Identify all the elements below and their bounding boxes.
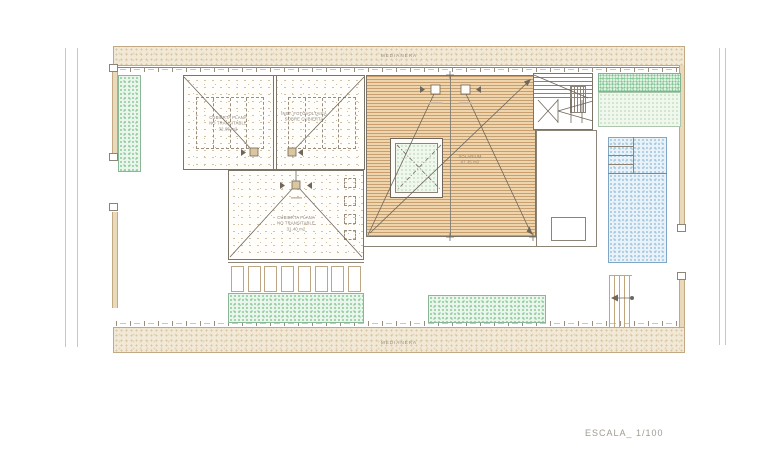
green-band-dark xyxy=(598,73,681,92)
pool-steps-divider xyxy=(633,137,634,173)
right-wall-lower xyxy=(679,280,685,327)
pergola-edge-line xyxy=(228,262,364,263)
pool-step-3 xyxy=(608,164,633,165)
floor-plan-canvas: MEDIANERA MEDIANERA CUBIERTA PLANA NO TR… xyxy=(0,0,770,460)
planter-left xyxy=(118,75,141,172)
left-wall-pier-3 xyxy=(109,203,118,211)
right-wall-pier-1 xyxy=(677,224,686,232)
site-boundary-line-right-outer xyxy=(725,48,726,345)
pool-shelf-line xyxy=(608,173,667,174)
scale-label: ESCALA_ 1/100 xyxy=(585,428,664,438)
left-wall-pier-1 xyxy=(109,64,118,72)
pool-step-1 xyxy=(608,146,633,147)
roof-vent-2 xyxy=(344,196,356,206)
enclosure-inner-box xyxy=(551,217,586,241)
pv-array-grid-right xyxy=(288,97,356,149)
party-wall-bottom: MEDIANERA xyxy=(113,327,685,353)
dimension-ticks-top xyxy=(116,67,682,72)
pool-step-2 xyxy=(608,155,633,156)
solarium-label: SOLARIUM 47.35 m2 xyxy=(442,154,498,165)
lawn-under-pergola xyxy=(228,293,364,323)
skylight-glass xyxy=(395,143,438,193)
right-wall-pier-2 xyxy=(677,272,686,280)
lawn-bottom-center xyxy=(428,295,546,323)
left-wall-pier-2 xyxy=(109,153,118,161)
green-band-light xyxy=(598,92,681,127)
pergola-slats xyxy=(228,266,364,292)
roof-vent-1 xyxy=(344,178,356,188)
roof-lower-label: CUBIERTA PLANA NO TRANSITABLE 31.40 m2 xyxy=(268,216,324,233)
roof-vent-4 xyxy=(344,230,356,240)
staircase-core xyxy=(570,86,586,113)
party-wall-top: MEDIANERA xyxy=(113,46,685,66)
party-wall-top-label: MEDIANERA xyxy=(177,54,622,59)
site-boundary-line-left-inner xyxy=(77,48,78,347)
left-wall-lower xyxy=(112,212,118,308)
dimension-ticks-bottom xyxy=(116,321,682,326)
roof-pv-label: INST. FOTOVOLTAICA SOBRE CUBIERTA xyxy=(276,111,332,122)
site-boundary-line-left-outer xyxy=(65,48,66,347)
party-wall-bottom-label: MEDIANERA xyxy=(177,341,622,346)
site-boundary-line-right-inner xyxy=(719,48,720,345)
roof-vent-3 xyxy=(344,214,356,224)
gate-slats xyxy=(609,275,632,327)
roof-left-label: CUBIERTA PLANA NO TRANSITABLE 32.06 m2 xyxy=(200,116,256,133)
